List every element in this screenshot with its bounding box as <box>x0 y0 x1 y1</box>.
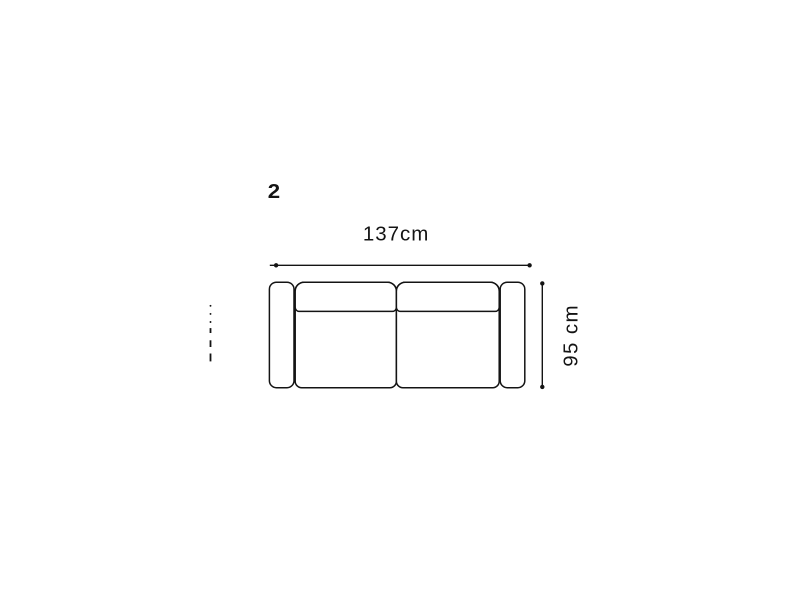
svg-text:137cm: 137cm <box>363 223 430 246</box>
svg-text:95 cm: 95 cm <box>560 304 583 367</box>
svg-text:2: 2 <box>268 180 280 203</box>
